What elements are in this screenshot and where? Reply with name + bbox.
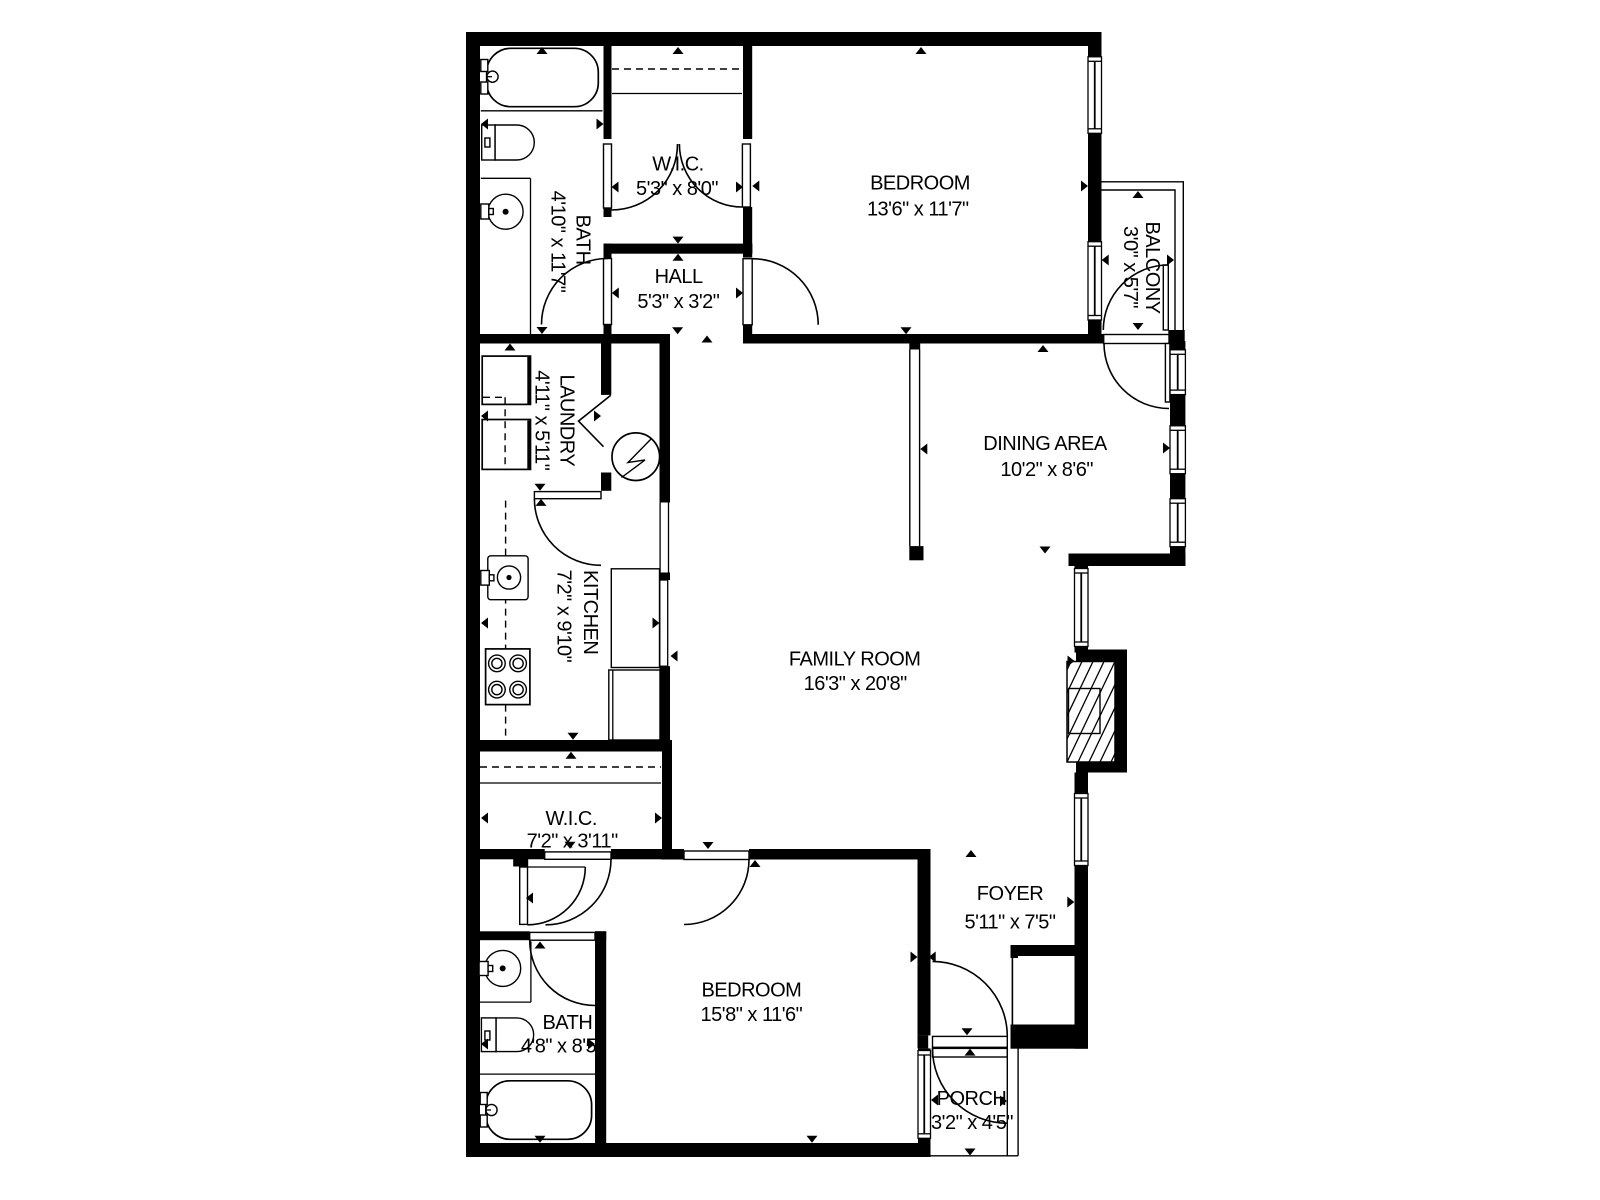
svg-text:16'3" x 20'8": 16'3" x 20'8" [804, 673, 908, 695]
svg-text:W.I.C.: W.I.C. [545, 808, 596, 830]
svg-text:BEDROOM: BEDROOM [701, 980, 801, 1002]
svg-text:KITCHEN: KITCHEN [579, 570, 601, 654]
svg-text:DINING AREA: DINING AREA [983, 433, 1108, 455]
svg-text:FOYER: FOYER [977, 883, 1043, 905]
svg-text:3'0" x 5'7": 3'0" x 5'7" [1119, 226, 1141, 308]
svg-text:W.I.C.: W.I.C. [652, 154, 703, 176]
svg-text:BALCONY: BALCONY [1141, 221, 1163, 313]
svg-text:15'8" x 11'6": 15'8" x 11'6" [701, 1004, 803, 1026]
svg-text:4'10" x 11'7": 4'10" x 11'7" [546, 191, 568, 293]
svg-text:LAUNDRY: LAUNDRY [556, 374, 578, 466]
svg-text:7'2" x 9'10": 7'2" x 9'10" [553, 570, 575, 663]
svg-text:FAMILY ROOM: FAMILY ROOM [789, 649, 921, 671]
svg-text:BEDROOM: BEDROOM [870, 173, 970, 195]
svg-text:5'3" x 8'0": 5'3" x 8'0" [636, 178, 718, 200]
svg-text:10'2" x 8'6": 10'2" x 8'6" [1000, 459, 1093, 481]
svg-text:5'11" x 7'5": 5'11" x 7'5" [964, 912, 1055, 934]
svg-text:4'11" x 5'11": 4'11" x 5'11" [531, 370, 553, 471]
svg-text:5'3" x 3'2": 5'3" x 3'2" [637, 291, 719, 313]
svg-text:7'2" x 3'11": 7'2" x 3'11" [527, 831, 618, 853]
svg-text:3'2" x 4'5": 3'2" x 4'5" [931, 1112, 1013, 1134]
svg-text:BATH: BATH [571, 215, 593, 265]
svg-text:BATH: BATH [542, 1012, 592, 1034]
svg-text:13'6" x 11'7": 13'6" x 11'7" [867, 199, 969, 221]
svg-text:PORCH: PORCH [937, 1088, 1007, 1110]
svg-text:HALL: HALL [655, 266, 703, 288]
